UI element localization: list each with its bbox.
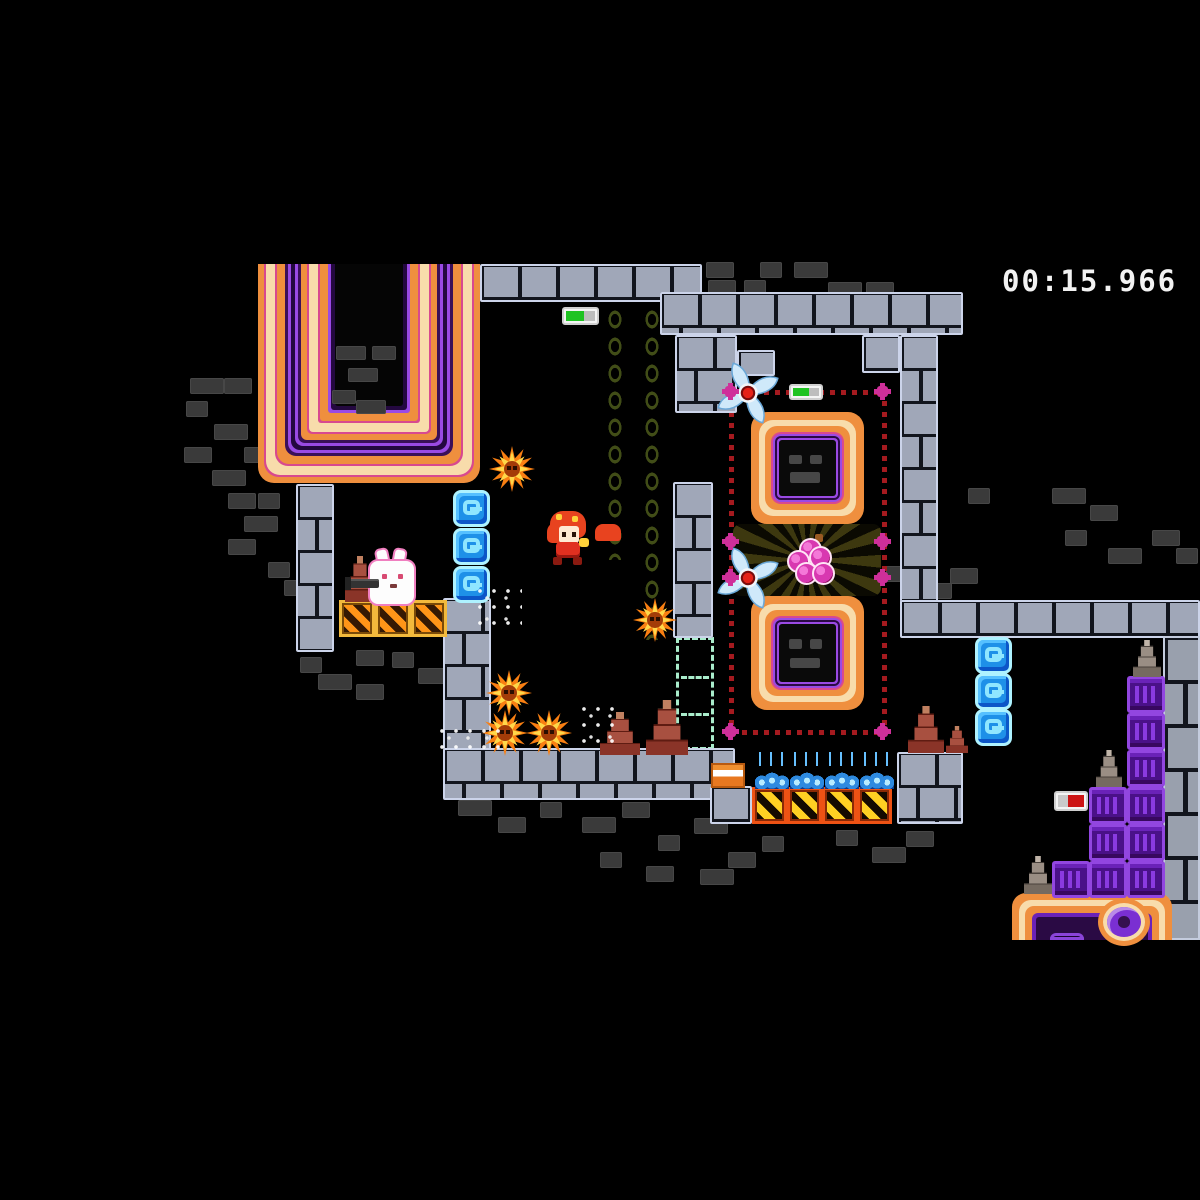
tube-band [288, 264, 450, 453]
background-brick [214, 424, 248, 440]
brick-wall-pillar-left [296, 484, 334, 652]
background-brick [228, 493, 256, 509]
background-brick [1176, 548, 1198, 564]
background-brick [318, 674, 352, 690]
purple-crate [1052, 861, 1090, 898]
boundary-node [877, 536, 888, 547]
tube-band [295, 264, 443, 446]
spike-star-hazard [633, 598, 677, 642]
rabbit-gun [349, 579, 379, 588]
tube-band [331, 264, 407, 410]
background-brick [228, 539, 256, 555]
purple-crate [1127, 824, 1165, 861]
frame-face-eye [789, 639, 802, 649]
purple-crate [1089, 787, 1127, 824]
cone-obstacle [946, 726, 968, 753]
player-body [556, 542, 580, 558]
background-brick [658, 835, 680, 851]
background-brick [836, 830, 858, 846]
boundary-node [725, 386, 736, 397]
background-brick [906, 831, 934, 847]
tube-band [277, 264, 461, 464]
boundary-node [725, 536, 736, 547]
ice-block [453, 490, 490, 527]
hazard-crate [822, 787, 857, 824]
background-brick [332, 390, 356, 404]
background-brick [968, 488, 990, 504]
hazard-crate [339, 600, 375, 637]
brick-wall-pillar-right [900, 335, 938, 635]
indicator-segment [809, 388, 819, 396]
purple-crate [1089, 824, 1127, 861]
background-brick [706, 262, 734, 278]
neon-machine [1012, 893, 1172, 940]
hanging-chain [641, 306, 663, 640]
background-brick [498, 817, 526, 833]
frame-band [771, 616, 844, 690]
hazard-crate [787, 787, 822, 824]
frame-band [775, 436, 840, 500]
background-brick [268, 562, 290, 578]
player-boot [553, 557, 562, 565]
background-brick [728, 852, 756, 868]
background-brick [760, 262, 782, 278]
cone-obstacle [1024, 856, 1052, 894]
ice-block [975, 637, 1012, 674]
background-brick [348, 368, 378, 382]
dust-particles [478, 588, 522, 628]
hanging-chain [604, 306, 626, 560]
cone-obstacle [1133, 640, 1161, 677]
frame-band [779, 624, 836, 682]
purple-crate [1127, 713, 1165, 750]
star-core [647, 612, 663, 628]
background-brick [794, 262, 828, 278]
frame-band [759, 604, 856, 702]
frame-band [773, 618, 842, 688]
rabbit-eye [382, 574, 387, 579]
dust-particles [440, 728, 504, 756]
background-brick [1065, 530, 1087, 546]
spike-star-hazard [489, 446, 535, 492]
electric-spike [755, 763, 789, 789]
electric-spike [825, 763, 859, 789]
background-brick [540, 802, 562, 818]
background-brick [700, 869, 734, 885]
brick-wall-wall-right-edge [1163, 636, 1200, 940]
background-brick [356, 400, 386, 414]
background-brick [458, 800, 492, 816]
spike-star-hazard [526, 710, 572, 756]
background-brick [184, 447, 212, 463]
brick-wall-arm-right [862, 335, 900, 373]
frame-face-mouth [790, 658, 820, 668]
background-brick [190, 378, 224, 394]
player-arm [579, 538, 589, 547]
laser-boundary-dots-h [731, 730, 887, 735]
background-brick [1108, 548, 1142, 564]
background-brick [1090, 505, 1118, 521]
boundary-node [725, 726, 736, 737]
switch-indicator-red [1054, 791, 1088, 811]
background-brick [646, 866, 674, 882]
frame-face-eye [810, 455, 823, 465]
ghost-block-outline [676, 637, 714, 750]
frame-face-eye [789, 455, 802, 465]
indicator-segment [793, 388, 809, 396]
background-brick [622, 802, 650, 818]
background-brick [600, 852, 622, 868]
rabbit-eye [398, 574, 403, 579]
frame-band [777, 622, 838, 684]
boundary-node [725, 572, 736, 583]
purple-crate [1089, 861, 1127, 898]
background-brick [224, 378, 252, 394]
machine-port [1098, 898, 1150, 946]
purple-crate [1127, 787, 1165, 824]
cone-obstacle [1096, 750, 1122, 787]
striped-block [711, 763, 745, 788]
frame-face-eye [810, 639, 823, 649]
indicator-segment [584, 311, 595, 321]
background-brick [336, 346, 366, 360]
background-brick [212, 470, 246, 486]
background-brick [356, 684, 384, 700]
frame-band [777, 438, 838, 498]
frame-face-mouth [790, 472, 820, 482]
machine-slab [1050, 933, 1084, 940]
electric-spike [790, 763, 824, 789]
background-brick [244, 516, 278, 532]
frame-band [759, 420, 856, 516]
player-character [543, 511, 593, 566]
rabbit-mouth [390, 584, 397, 588]
hazard-crate [752, 787, 787, 824]
timer-display: 00:15.966 [1002, 264, 1174, 298]
ghost-block-divider [681, 713, 709, 716]
rabbit-enemy [352, 552, 418, 602]
background-brick [582, 817, 616, 833]
neon-block-frame [751, 412, 864, 524]
grape-ball [812, 562, 835, 585]
indicator-segment [1058, 795, 1068, 807]
brick-wall-pillar-mid [673, 482, 713, 638]
frame-band [775, 620, 840, 686]
frame-band [771, 432, 844, 504]
brick-wall-floor-right [900, 600, 1200, 638]
purple-crate [1127, 676, 1165, 713]
purple-crate [1127, 750, 1165, 787]
background-brick [762, 836, 784, 852]
boundary-node [877, 726, 888, 737]
neon-block-frame [751, 596, 864, 710]
indicator-segment [566, 311, 584, 321]
boundary-node [877, 572, 888, 583]
tube-band [298, 264, 440, 443]
player-face [559, 526, 579, 543]
dust-particles [582, 706, 622, 754]
cone-obstacle [908, 706, 944, 753]
laser-boundary-dots-v [882, 390, 887, 735]
purple-crate [1127, 861, 1165, 898]
background-brick [372, 346, 396, 360]
boundary-node [877, 386, 888, 397]
indicator-segment [1068, 795, 1084, 807]
background-brick [950, 568, 978, 584]
ice-block [975, 673, 1012, 710]
background-brick [356, 650, 384, 666]
background-brick [1052, 488, 1086, 504]
background-brick [392, 652, 414, 668]
ghost-block-divider [681, 676, 709, 679]
background-brick [300, 657, 322, 673]
hazard-crate [857, 787, 892, 824]
tube-band [285, 264, 453, 456]
hazard-crate [411, 600, 447, 637]
game-viewport[interactable]: 00:15.966 [0, 0, 1200, 1200]
tube-band [275, 264, 463, 466]
background-brick [186, 401, 208, 417]
grapes-pickup [785, 534, 839, 588]
tube-band [335, 264, 403, 406]
background-brick [872, 847, 906, 863]
frame-band [779, 440, 836, 496]
electric-spike [860, 763, 894, 789]
frame-band [765, 610, 850, 696]
frame-band [765, 426, 850, 510]
ice-block [453, 528, 490, 565]
background-brick [1152, 530, 1180, 546]
brick-wall-patch-cones [897, 752, 963, 824]
brick-wall-patch-under-block [710, 786, 752, 824]
switch-indicator-green [562, 307, 599, 325]
player-boot [573, 557, 582, 565]
brick-wall-band-top-right [660, 292, 963, 335]
background-brick [258, 493, 280, 509]
switch-indicator-green [789, 384, 823, 400]
ice-block [975, 709, 1012, 746]
frame-band [773, 434, 842, 502]
tube-band [291, 264, 447, 450]
